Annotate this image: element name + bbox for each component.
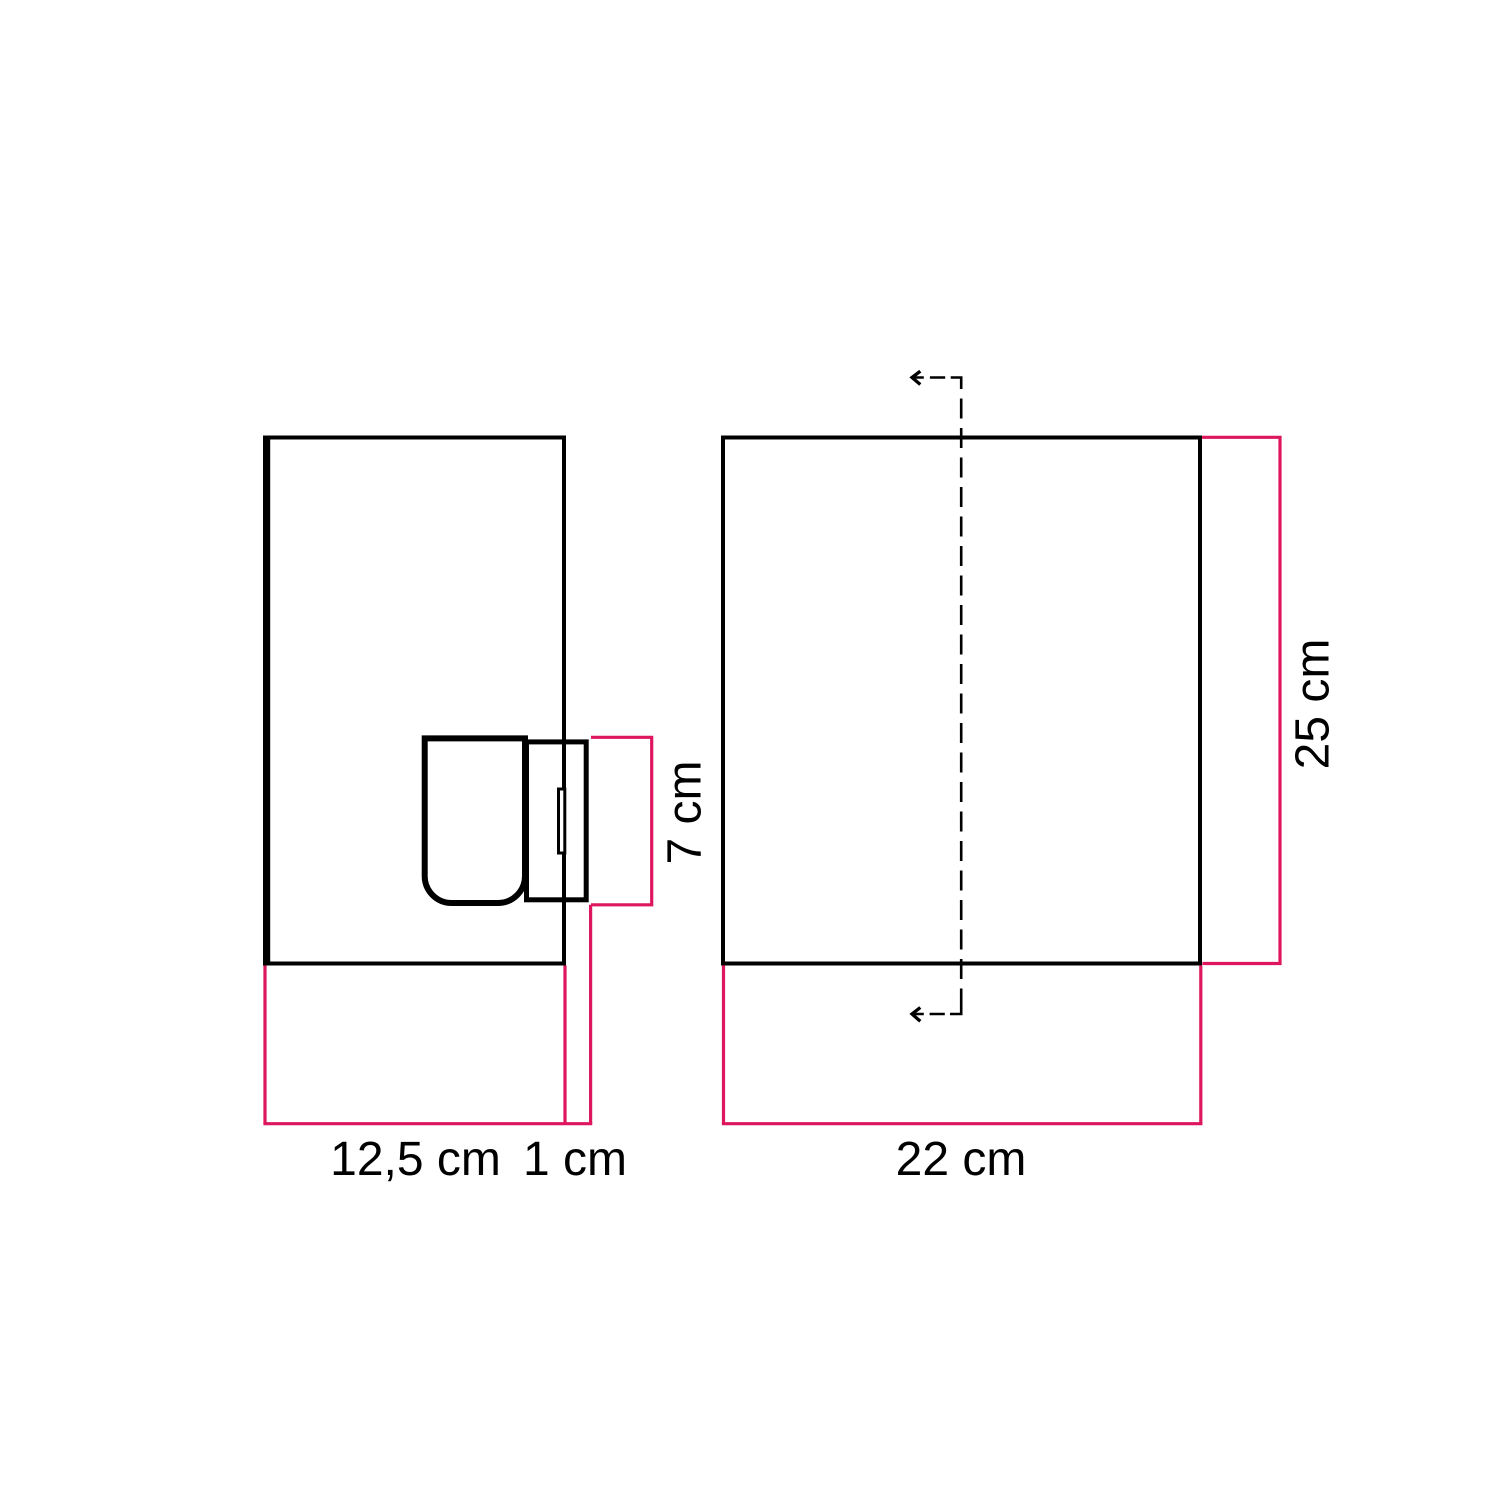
svg-text:25 cm: 25 cm [1287, 639, 1340, 770]
svg-text:1 cm: 1 cm [523, 1133, 627, 1186]
svg-text:22 cm: 22 cm [896, 1133, 1027, 1186]
svg-text:7 cm: 7 cm [658, 760, 711, 864]
svg-text:12,5 cm: 12,5 cm [330, 1133, 501, 1186]
